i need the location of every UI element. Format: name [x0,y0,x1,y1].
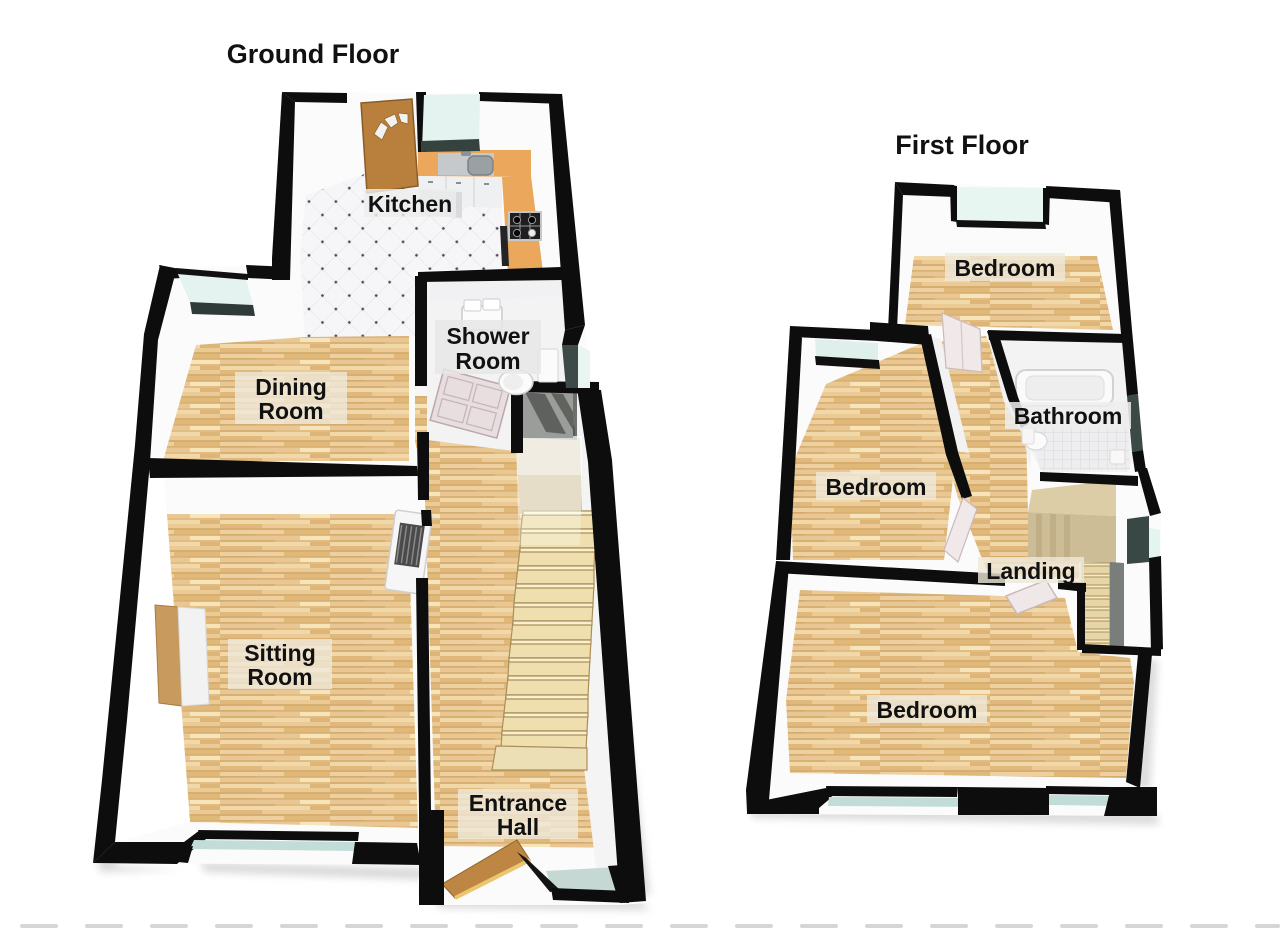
svg-text:Bathroom: Bathroom [1014,403,1123,429]
svg-text:Bedroom: Bedroom [877,697,978,723]
svg-text:Room: Room [247,664,312,690]
svg-text:Hall: Hall [497,814,539,840]
svg-text:Kitchen: Kitchen [368,191,452,217]
svg-text:Entrance: Entrance [469,790,567,816]
svg-text:First Floor: First Floor [895,130,1029,160]
svg-text:Ground Floor: Ground Floor [227,39,400,69]
svg-text:Sitting: Sitting [244,640,316,666]
svg-text:Shower: Shower [446,323,529,349]
svg-text:Room: Room [455,348,520,374]
svg-text:Bedroom: Bedroom [826,474,927,500]
svg-text:Room: Room [258,398,323,424]
svg-text:Dining: Dining [255,374,327,400]
svg-text:Landing: Landing [986,558,1075,584]
svg-text:Bedroom: Bedroom [955,255,1056,281]
